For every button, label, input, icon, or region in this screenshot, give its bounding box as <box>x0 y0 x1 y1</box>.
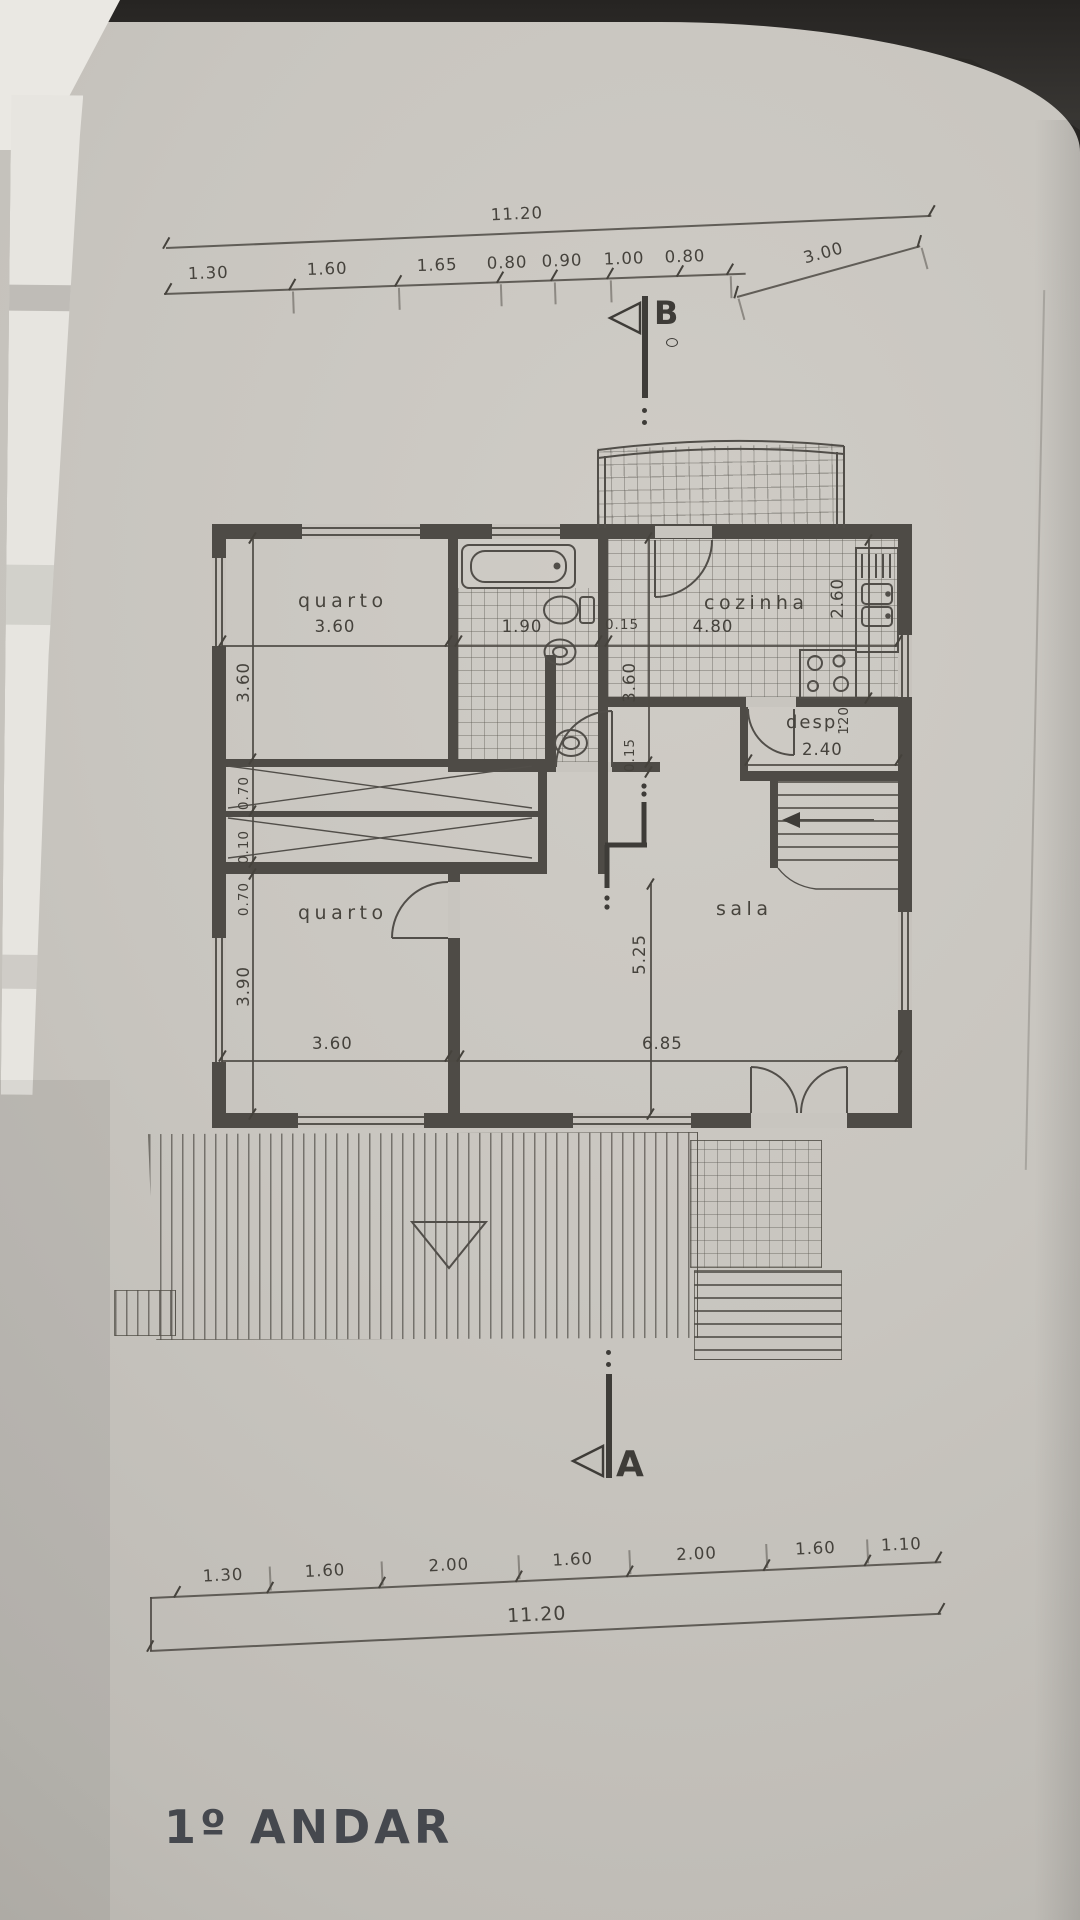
dim-label: 0.90 <box>541 252 582 270</box>
dim-label-quarto-bottom-width: 3.60 <box>312 1036 353 1053</box>
section-line-dot <box>642 408 647 413</box>
dim-label: 1.65 <box>417 257 458 275</box>
dim-line-despensa <box>748 764 898 766</box>
dim-label-cozinha-depth: 2.60 <box>830 578 847 619</box>
kitchen-tile-hatch <box>608 538 898 697</box>
wall-closet-end <box>538 763 547 874</box>
dim-line-sala-depth <box>650 884 652 1114</box>
dim-label-closet: 0.70 <box>238 776 252 810</box>
window-left-quarto-top <box>212 558 226 646</box>
dim-label-total: 11.20 <box>490 205 543 224</box>
dim-line-plan-mid <box>648 538 650 772</box>
section-line-a <box>606 1374 612 1478</box>
dim-label: 1.60 <box>304 1562 345 1580</box>
dim-label-sala-depth: 5.25 <box>632 934 649 975</box>
stair-treads <box>778 781 898 867</box>
dim-label-closet: 0.70 <box>238 882 252 916</box>
door-gap-french-door <box>751 1113 847 1128</box>
dim-label-wall: 0.15 <box>605 619 639 633</box>
dim-label: 1.30 <box>202 1567 243 1585</box>
wall-closet-mid <box>222 811 540 817</box>
deck-step-notch <box>114 1290 176 1336</box>
door-gap-despensa <box>746 697 796 707</box>
section-label-a: A <box>616 1444 644 1485</box>
wall-stair-side <box>770 781 778 868</box>
window-left-quarto-bottom <box>212 938 226 1062</box>
wall-quarto-bottom-top <box>222 862 547 874</box>
photo-shadow-left <box>0 1080 110 1920</box>
window-top-quarto <box>302 524 420 539</box>
door-gap-terrace <box>655 526 712 538</box>
door-gap-quarto-bottom <box>448 882 460 938</box>
dim-label: 1.00 <box>603 250 644 268</box>
section-line-dot <box>642 420 647 425</box>
dim-label: 0.80 <box>664 248 705 266</box>
section-line-dot <box>606 1362 611 1367</box>
dim-line-plan-upper: 3.60 1.90 0.15 4.80 <box>222 645 898 647</box>
drawing-title: 1º ANDAR <box>164 1800 453 1854</box>
dim-label: 1.30 <box>188 265 229 283</box>
window-right-sala <box>898 912 912 1010</box>
dim-line-plan-lower <box>222 1060 898 1062</box>
drawing-paper <box>0 22 1080 1920</box>
bathroom-tile-hatch <box>458 588 598 762</box>
exterior-steps <box>694 1270 842 1360</box>
wall-closet-top <box>222 759 545 767</box>
dim-label-closet-gap: 0.10 <box>238 830 252 864</box>
rear-terrace-tile-hatch <box>690 1140 822 1268</box>
wall-hall-left <box>545 655 556 765</box>
dim-label-despensa-depth: 120 <box>838 706 852 735</box>
wall-quarto-bath <box>448 538 458 772</box>
dim-label: 1.10 <box>881 1536 922 1554</box>
section-line-dot <box>606 1350 611 1355</box>
wall-despensa-left <box>740 707 748 781</box>
terrace-tile-hatch <box>597 443 845 530</box>
dim-label-despensa-width: 2.40 <box>802 742 843 759</box>
small-circle-mark <box>666 338 678 347</box>
section-label-b: B <box>654 294 678 332</box>
dim-label-left: 3.60 <box>236 662 253 703</box>
room-label-sala: sala <box>716 900 772 919</box>
dim-label: 2.00 <box>676 1545 717 1563</box>
dim-label: 1.60 <box>795 1540 836 1558</box>
window-bottom-quarto <box>298 1113 424 1128</box>
wall-despensa-bottom <box>740 771 912 781</box>
room-label-quarto-top: quarto <box>298 592 388 611</box>
dim-label-total: 11.20 <box>507 1604 567 1626</box>
window-top-bath <box>492 524 560 539</box>
dim-line-plan-left <box>252 538 254 1114</box>
dim-label-sala-width: 6.85 <box>642 1036 683 1053</box>
scanned-floor-plan-photo: { "title": "1º ANDAR", "markers": {"top"… <box>0 0 1080 1920</box>
wall-hall-sala <box>598 707 608 874</box>
deck-plank-hatch <box>148 1132 698 1340</box>
wall-exterior-right <box>898 524 912 1128</box>
dim-label-quarto-width: 3.60 <box>315 619 356 636</box>
dim-label: 2.00 <box>428 1556 469 1574</box>
dim-line-kitchen-depth <box>868 540 870 698</box>
dim-label-bath-width: 1.90 <box>502 619 543 636</box>
window-bottom-sala <box>573 1113 691 1128</box>
dim-label: 0.80 <box>486 254 527 272</box>
section-line-b <box>642 296 648 398</box>
dim-label-left-bottom: 3.90 <box>236 966 253 1007</box>
room-label-quarto-bottom: quarto <box>298 904 388 923</box>
dim-label: 1.60 <box>552 1551 593 1569</box>
dim-label-cozinha-width: 4.80 <box>693 619 734 636</box>
dim-label-bath-depth: 3.60 <box>622 662 639 703</box>
dim-label-wall: 0.15 <box>624 738 638 772</box>
dim-label: 1.60 <box>307 261 348 279</box>
room-label-cozinha: cozinha <box>704 594 809 613</box>
